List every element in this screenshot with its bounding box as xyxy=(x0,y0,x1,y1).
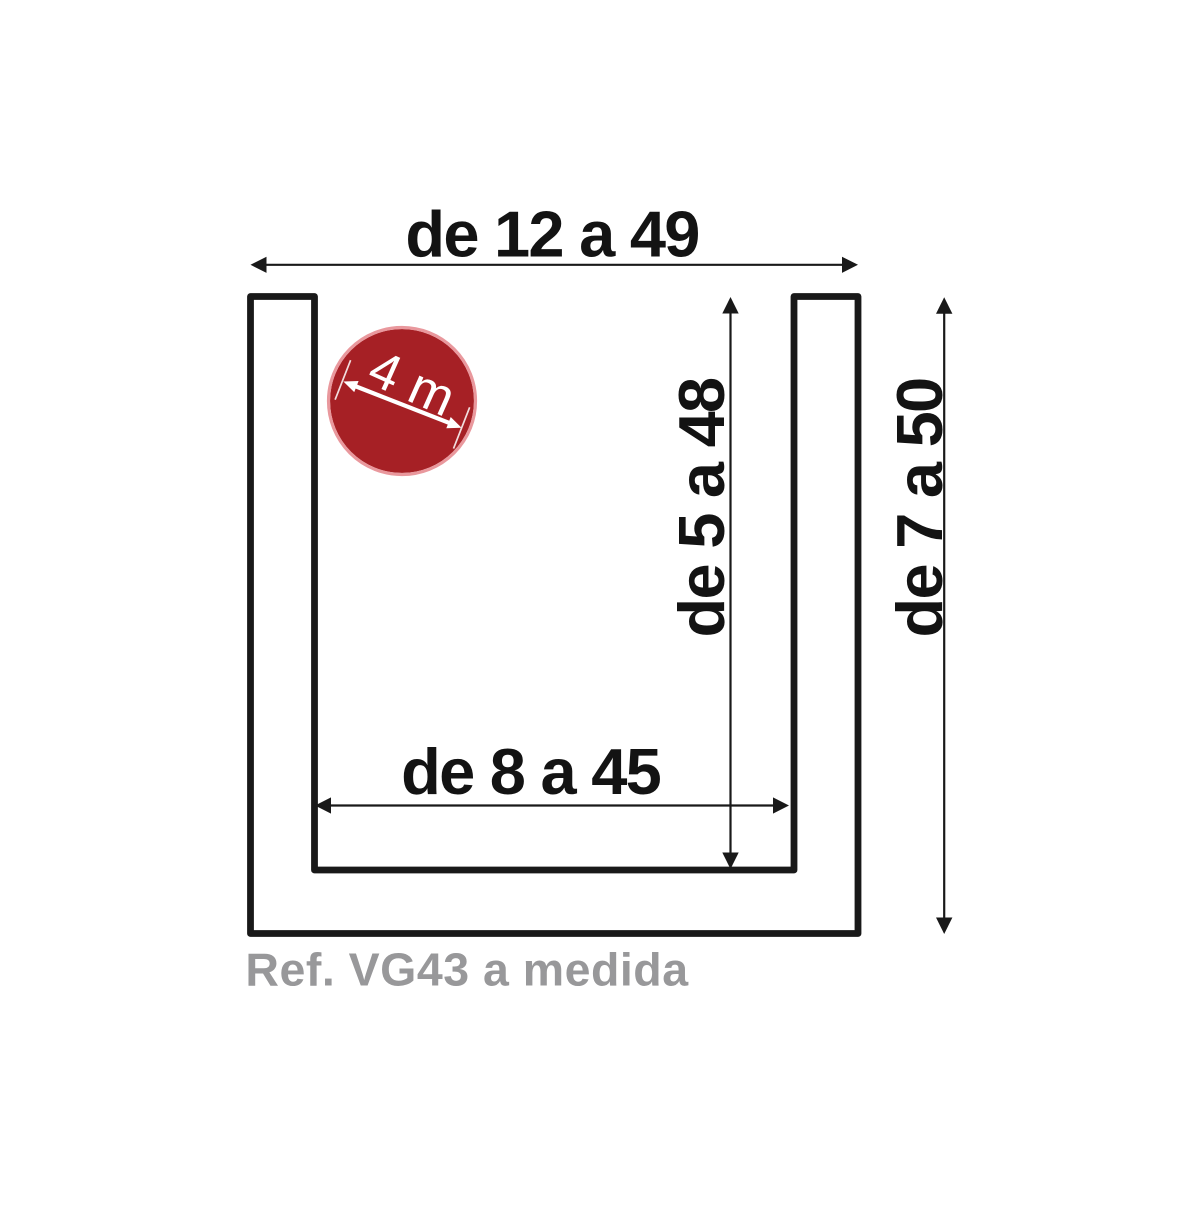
svg-text:de 8 a 45: de 8 a 45 xyxy=(401,735,660,808)
svg-text:de 7 a 50: de 7 a 50 xyxy=(883,379,956,638)
svg-text:de 5 a 48: de 5 a 48 xyxy=(665,378,738,637)
svg-text:de 12 a 49: de 12 a 49 xyxy=(405,198,698,271)
svg-text:Ref. VG43 a medida: Ref. VG43 a medida xyxy=(245,943,689,995)
